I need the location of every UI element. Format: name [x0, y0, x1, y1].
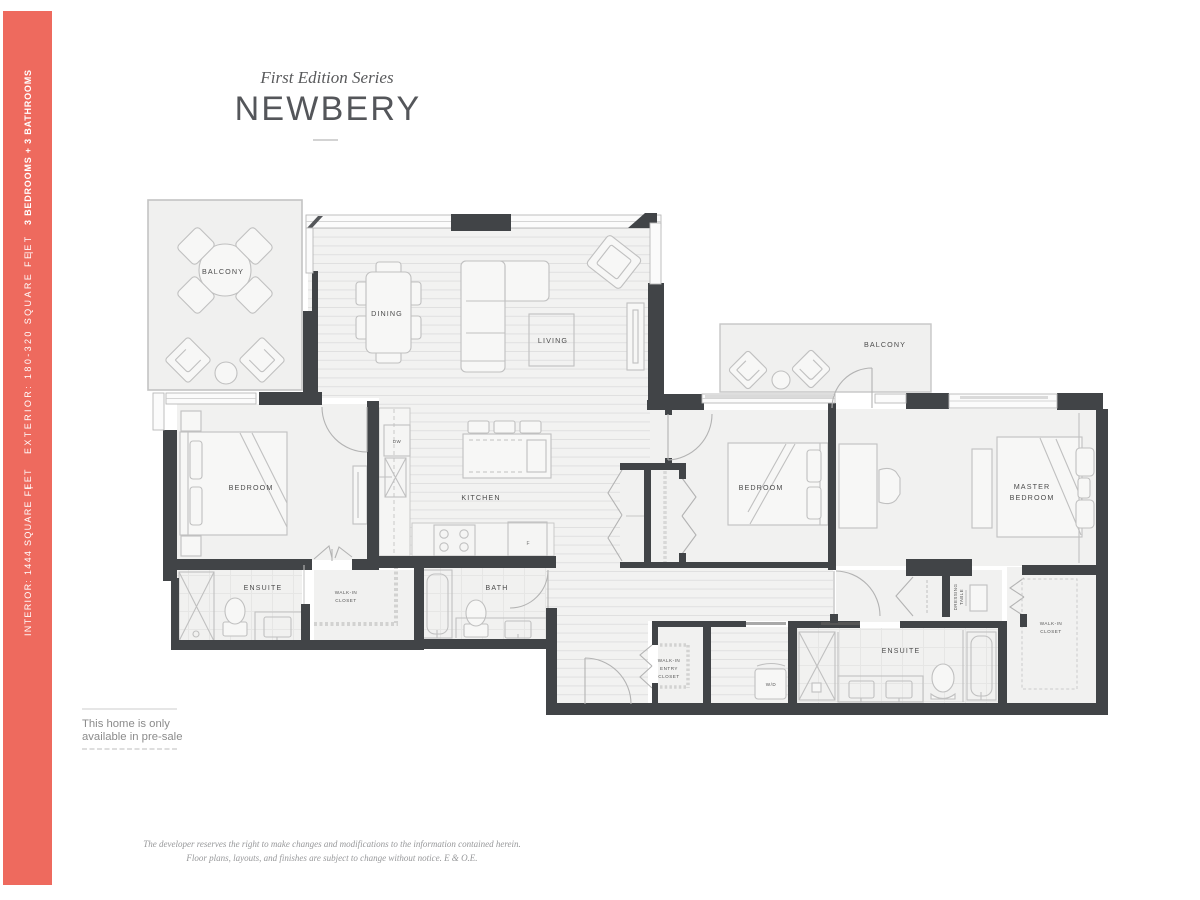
svg-text:LIVING: LIVING — [538, 336, 568, 345]
svg-text:KITCHEN: KITCHEN — [461, 493, 500, 502]
svg-text:BALCONY: BALCONY — [202, 267, 244, 276]
svg-text:CLOSET: CLOSET — [658, 674, 679, 679]
svg-text:ENSUITE: ENSUITE — [882, 648, 921, 655]
svg-text:3 BEDROOMS + 3 BATHROOMS: 3 BEDROOMS + 3 BATHROOMS — [23, 69, 33, 225]
svg-text:MASTER: MASTER — [1014, 482, 1051, 491]
svg-text:BEDROOM: BEDROOM — [1010, 493, 1055, 502]
svg-text:WALK-IN: WALK-IN — [335, 590, 357, 595]
svg-text:F: F — [526, 541, 529, 547]
svg-text:BATH: BATH — [486, 585, 509, 592]
svg-text:INTERIOR: 1444 SQUARE FEET: INTERIOR: 1444 SQUARE FEET — [23, 468, 33, 636]
svg-text:CLOSET: CLOSET — [335, 598, 356, 603]
svg-text:EXTERIOR: 180-320 SQUARE FEET: EXTERIOR: 180-320 SQUARE FEET — [23, 234, 33, 454]
svg-text:The developer reserves the rig: The developer reserves the right to make… — [143, 839, 521, 849]
svg-text:available in pre-sale: available in pre-sale — [82, 731, 182, 743]
svg-text:|: | — [23, 487, 33, 489]
svg-text:WALK-IN: WALK-IN — [1040, 621, 1062, 626]
svg-text:ENTRY: ENTRY — [660, 666, 678, 671]
svg-text:BEDROOM: BEDROOM — [229, 483, 274, 492]
svg-text:ENSUITE: ENSUITE — [244, 585, 283, 592]
svg-text:DINING: DINING — [371, 309, 403, 318]
svg-text:DW: DW — [393, 439, 402, 444]
svg-text:TABLE: TABLE — [959, 589, 964, 605]
svg-text:This home is only: This home is only — [82, 718, 170, 730]
svg-text:WALK-IN: WALK-IN — [658, 658, 680, 663]
svg-text:W/D: W/D — [766, 682, 777, 687]
svg-text:DRESSING: DRESSING — [953, 584, 958, 611]
svg-text:NEWBERY: NEWBERY — [235, 90, 422, 128]
svg-text:BEDROOM: BEDROOM — [739, 483, 784, 492]
svg-text:First Edition Series: First Edition Series — [259, 68, 394, 87]
svg-text:CLOSET: CLOSET — [1040, 629, 1061, 634]
svg-text:BALCONY: BALCONY — [864, 340, 906, 349]
svg-text:Floor plans, layouts, and fini: Floor plans, layouts, and finishes are s… — [185, 853, 477, 863]
svg-text:|: | — [23, 252, 33, 254]
